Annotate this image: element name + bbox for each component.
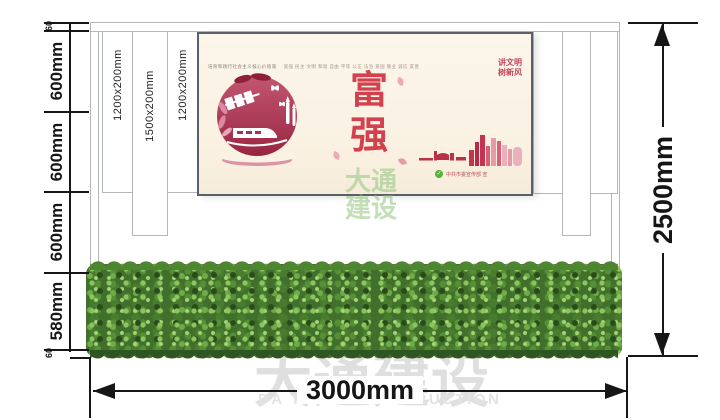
dim-label-width: 3000mm: [297, 376, 423, 404]
papercut-circle-illustration: [213, 72, 309, 168]
attribution-row: ✓ 中共市委宣传部 宣: [435, 170, 487, 178]
char-fu: 富: [338, 67, 400, 112]
arrow-up-icon: [654, 24, 670, 46]
left-wall: [90, 31, 99, 271]
dim-label-600-1: 600mm: [48, 31, 66, 111]
dim-label-600-2: 600mm: [48, 112, 66, 192]
dim-extension: [89, 357, 91, 418]
post-left-1: 1200x200mm: [102, 31, 133, 193]
dim-label-600-3: 600mm: [48, 192, 66, 272]
arrow-right-icon: [605, 383, 627, 399]
post-right-3: [590, 31, 618, 194]
poster-main-characters: 富 强: [338, 67, 400, 157]
values-title: 培育和践行社会主义核心价值观: [208, 64, 277, 69]
attribution-text: 中共市委宣传部 宣: [446, 171, 487, 178]
post-left-2: 1500x200mm: [132, 31, 168, 236]
dimension-line-left: [69, 22, 71, 352]
slogan-text: 讲文明 树新风: [498, 58, 522, 77]
dim-label-height: 2500mm: [649, 127, 677, 253]
check-icon: ✓: [435, 170, 443, 178]
dim-extension: [70, 357, 90, 359]
leaf-decoration: [398, 157, 407, 166]
char-qiang: 强: [338, 112, 400, 157]
post-size-label: 1200x200mm: [112, 49, 124, 121]
post-size-label: 1500x200mm: [144, 70, 156, 142]
hedge-greenery: [86, 264, 622, 356]
post-right-2: [562, 31, 591, 236]
post-right-1: [533, 31, 563, 194]
arrow-left-icon: [93, 383, 115, 399]
arrow-down-icon: [654, 333, 670, 355]
post-left-3: 1200x200mm: [167, 31, 198, 193]
dim-label-60-bottom: 60: [44, 328, 54, 378]
watermark-small: 大通 建设: [344, 168, 398, 222]
city-skyline-graphic: [419, 128, 527, 172]
post-size-label: 1200x200mm: [177, 49, 189, 121]
